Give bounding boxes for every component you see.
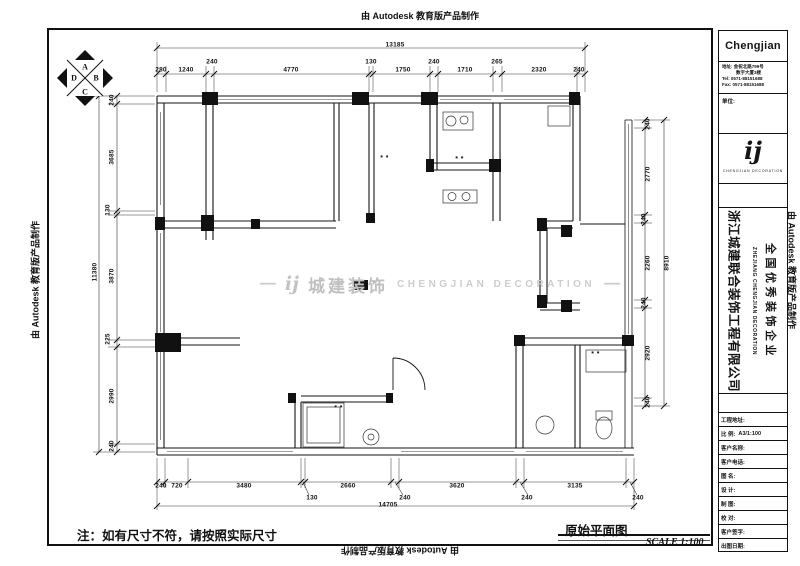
title-block-row: 校 对: <box>719 511 787 525</box>
autodesk-stamp-left: 由 Autodesk 教育版产品制作 <box>29 221 42 339</box>
chengjian-logo-mark-icon: ij <box>719 134 787 168</box>
brand-name: Chengjian <box>719 31 787 62</box>
drawing-scale: SCALE 1:100 <box>646 537 704 548</box>
row-label: 工程地址: <box>721 416 745 424</box>
blank-cell-1 <box>719 184 787 208</box>
dim-label-top: 13185 <box>385 42 404 49</box>
watermark-cn-text: 城建装饰 <box>308 272 388 297</box>
row-label: 图 名: <box>721 472 735 480</box>
dim-label-bottom: 240 <box>155 483 166 490</box>
dim-label-bottom: 240 <box>632 495 643 502</box>
dim-label-left: 240 <box>109 440 116 451</box>
dim-label-bottom: 240 <box>399 495 410 502</box>
dim-label-right: 2770 <box>645 166 652 181</box>
dim-label-bottom: 130 <box>306 495 317 502</box>
dim-label-left: 225 <box>105 333 112 344</box>
dim-label-bottom: 240 <box>521 495 532 502</box>
title-block-rows: 工程地址:比 例:A3/1:100客户名称:客户电话:图 名:设 计:制 图:校… <box>719 413 787 553</box>
row-label: 客户签字: <box>721 528 745 536</box>
room-label: ■ ■ <box>456 155 465 160</box>
dim-label-right: 240 <box>645 396 652 407</box>
north-arrow-letter-d: D <box>71 74 77 83</box>
row-label: 客户电话: <box>721 458 745 466</box>
title-block-row: 客户电话: <box>719 455 787 469</box>
row-label: 出图日期: <box>721 542 745 550</box>
dim-label-bottom: 14705 <box>378 502 397 509</box>
room-label: ■ ■ <box>381 154 390 159</box>
north-arrow-letter-b: B <box>93 74 98 83</box>
title-block-row: 客户名称: <box>719 441 787 455</box>
company-honor: 全国优秀装饰企业 <box>763 243 779 359</box>
room-label: ■ ■ <box>592 350 601 355</box>
title-block-row: 工程地址: <box>719 413 787 427</box>
dimension-note: 注：如有尺寸不符，请按照实际尺寸 <box>77 525 277 544</box>
row-label: 客户名称: <box>721 444 745 452</box>
dim-label-bottom: 720 <box>171 483 182 490</box>
dim-label-right: 2260 <box>645 255 652 270</box>
autodesk-stamp-top: 由 Autodesk 教育版产品制作 <box>150 9 690 22</box>
dim-label-bottom: 3620 <box>449 483 464 490</box>
dim-label-top: 130 <box>365 59 376 66</box>
title-block-row: 设 计: <box>719 483 787 497</box>
dim-label-left: 240 <box>109 94 116 105</box>
dim-label-top: 2320 <box>531 67 546 74</box>
blank-cell-2 <box>719 394 787 413</box>
row-label: 设 计: <box>721 486 735 494</box>
chengjian-logo-icon: ij <box>285 273 299 295</box>
logo-caption: CHENGJIAN DECORATION <box>719 169 787 173</box>
dim-label-top: 1710 <box>457 67 472 74</box>
company-fax: Fax: 0571-88151688 <box>722 82 785 88</box>
title-block-panel: Chengjian 地址: 金祝北路799号 数字大厦3楼 Tel: 0571-… <box>718 30 788 552</box>
drawing-sheet: 由 Autodesk 教育版产品制作 由 Autodesk 教育版产品制作 由 … <box>0 0 800 566</box>
dim-label-right: 8910 <box>664 255 671 270</box>
dim-label-top: 4770 <box>283 67 298 74</box>
row-label: 制 图: <box>721 500 735 508</box>
dim-label-top: 280 <box>155 67 166 74</box>
north-arrow-letter-a: A <box>82 63 88 72</box>
watermark-en-text: CHENGJIAN DECORATION <box>397 279 595 290</box>
unit-cell: 单位: <box>719 94 787 134</box>
dim-label-left: 3685 <box>109 149 116 164</box>
logo-cell: ij CHENGJIAN DECORATION <box>719 134 787 184</box>
title-block-row: 客户签字: <box>719 525 787 539</box>
dim-label-top: 265 <box>491 59 502 66</box>
dim-label-left: 3870 <box>109 268 116 283</box>
dim-label-right: 240 <box>641 213 648 224</box>
room-label: ■ ■ <box>335 404 344 409</box>
dim-label-top: 240 <box>428 59 439 66</box>
company-vertical-cell: 浙江城建联合装饰工程有限公司 ZHEJIANG CHENGJIAN DECORA… <box>719 208 787 394</box>
watermark: — ij 城建装饰 CHENGJIAN DECORATION — <box>262 272 618 296</box>
dim-label-bottom: 3480 <box>236 483 251 490</box>
dim-label-top: 240 <box>573 67 584 74</box>
dim-label-left: 11380 <box>92 263 99 282</box>
row-value: A3/1:100 <box>738 431 761 437</box>
title-block-row: 出图日期: <box>719 539 787 553</box>
dim-label-bottom: 3135 <box>567 483 582 490</box>
dim-label-right: 240 <box>645 118 652 129</box>
dim-label-top: 1750 <box>395 67 410 74</box>
row-label: 校 对: <box>721 514 735 522</box>
dim-label-left: 130 <box>105 204 112 215</box>
watermark-dash-left: — <box>260 275 276 293</box>
company-name-cn: 浙江城建联合装饰工程有限公司 <box>726 210 745 392</box>
dim-label-bottom: 2660 <box>340 483 355 490</box>
company-contact-cell: 地址: 金祝北路799号 数字大厦3楼 Tel: 0571-88151688 F… <box>719 62 787 94</box>
autodesk-stamp-bottom: 由 Autodesk 教育版产品制作 <box>341 545 459 558</box>
dim-label-top: 240 <box>206 59 217 66</box>
title-block-row: 制 图: <box>719 497 787 511</box>
dim-label-top: 1240 <box>178 67 193 74</box>
watermark-dash-right: — <box>604 275 620 293</box>
title-block-row: 图 名: <box>719 469 787 483</box>
dim-label-right: 2920 <box>645 345 652 360</box>
title-block-row: 比 例:A3/1:100 <box>719 427 787 441</box>
dim-label-right: 240 <box>641 297 648 308</box>
company-name-en: ZHEJIANG CHENGJIAN DECORATION <box>751 247 757 355</box>
north-arrow-letter-c: C <box>82 88 88 97</box>
dim-label-left: 2990 <box>109 388 116 403</box>
row-label: 比 例: <box>721 430 735 438</box>
